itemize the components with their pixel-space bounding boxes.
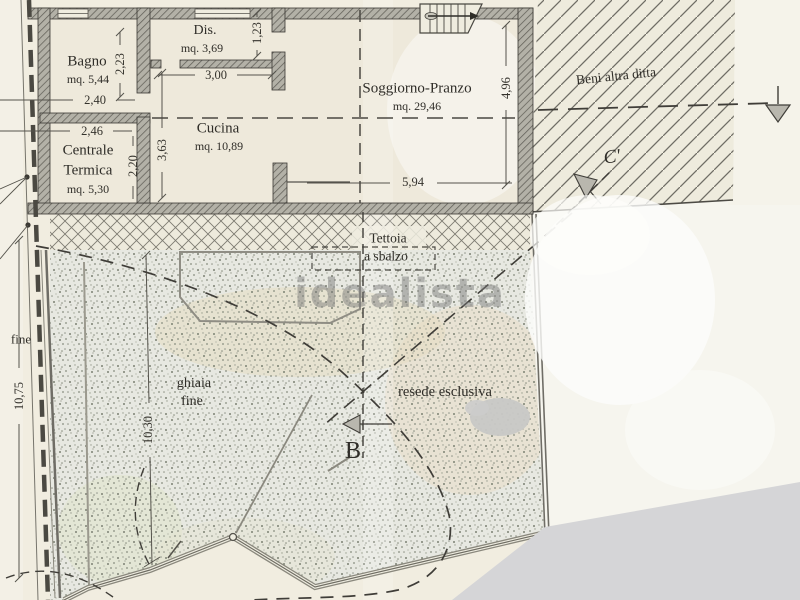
paper-left-margin	[0, 0, 23, 600]
dim-cucina-h: 3,63	[156, 139, 169, 161]
section-label-c: C'	[602, 146, 621, 167]
room-area-bagno: mq. 5,44	[67, 73, 109, 85]
room-label-bagno: Bagno	[67, 55, 106, 70]
room-area-cucina: mq. 10,89	[195, 140, 243, 152]
beni-altra-ditta-area	[530, 0, 735, 212]
dim-bagno-h: 2,23	[114, 53, 127, 75]
room-label-centrale-2: Termica	[64, 164, 113, 179]
room-label-centrale-1: Centrale	[63, 144, 114, 159]
room-area-soggiorno: mq. 29,46	[393, 100, 441, 112]
room-label-dis: Dis.	[194, 24, 217, 38]
label-ghiaia-1: ghiaia	[177, 377, 211, 391]
dim-soggiorno-w: 5,94	[402, 176, 424, 189]
room-label-cucina: Cucina	[197, 122, 240, 137]
dim-soggiorno-h: 4,96	[500, 77, 513, 99]
dim-cucina-w: 3,00	[205, 69, 227, 82]
floorplan-scan: Bagno mq. 5,44 Dis. mq. 3,69 Cucina mq. …	[0, 0, 800, 600]
dim-bagno-w: 2,40	[84, 94, 106, 107]
section-label-b: B	[345, 439, 361, 463]
dim-garden-left: 10,75	[13, 382, 26, 410]
fence-post-node	[230, 534, 237, 541]
label-resede: resede esclusiva	[398, 385, 492, 400]
dim-centrale-h: 2,20	[127, 155, 140, 177]
dim-centrale-w: 2,46	[81, 125, 103, 138]
label-tettoia-1: Tettoia	[369, 231, 406, 245]
dim-garden-inner: 10,30	[142, 416, 155, 444]
room-area-centrale: mq. 5,30	[67, 183, 109, 195]
idealista-watermark: idealista	[294, 271, 506, 317]
dim-dis-h: 1,23	[251, 22, 264, 44]
label-boundary-partial: fine	[11, 333, 31, 346]
label-tettoia-2: a sbalzo	[364, 249, 408, 263]
room-area-dis: mq. 3,69	[181, 42, 223, 54]
room-label-soggiorno: Soggiorno-Pranzo	[362, 82, 471, 97]
label-ghiaia-2: fine	[181, 395, 203, 409]
